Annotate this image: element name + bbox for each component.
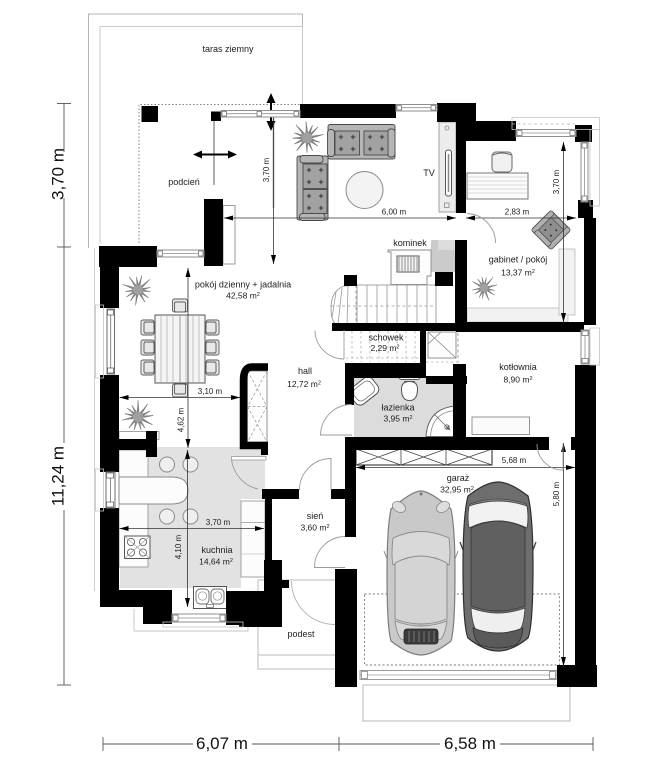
- svg-text:42,58 m2: 42,58 m2: [226, 291, 260, 301]
- svg-text:2,83 m: 2,83 m: [505, 208, 530, 217]
- svg-text:pokój dzienny + jadalnia: pokój dzienny + jadalnia: [195, 280, 291, 290]
- svg-text:4,10 m: 4,10 m: [174, 534, 183, 559]
- svg-text:6,58 m: 6,58 m: [444, 734, 496, 753]
- svg-text:11,24 m: 11,24 m: [49, 446, 68, 506]
- svg-text:3,70 m: 3,70 m: [552, 169, 561, 194]
- svg-text:schowek: schowek: [368, 333, 404, 343]
- svg-text:3,95 m2: 3,95 m2: [383, 414, 412, 424]
- svg-text:TV: TV: [423, 168, 435, 178]
- svg-text:12,72 m2: 12,72 m2: [287, 379, 321, 389]
- svg-text:5,68 m: 5,68 m: [502, 456, 527, 465]
- svg-text:kominek: kominek: [393, 238, 427, 248]
- svg-text:6,00 m: 6,00 m: [382, 208, 407, 217]
- svg-text:13,37 m2: 13,37 m2: [501, 268, 535, 278]
- svg-text:gabinet / pokój: gabinet / pokój: [489, 255, 548, 265]
- svg-text:łazienka: łazienka: [381, 403, 414, 413]
- svg-text:3,70 m: 3,70 m: [262, 157, 271, 182]
- svg-text:podcień: podcień: [168, 177, 200, 187]
- svg-text:kotłownia: kotłownia: [499, 362, 537, 372]
- svg-text:podest: podest: [287, 629, 315, 639]
- svg-text:3,10 m: 3,10 m: [198, 387, 223, 396]
- svg-text:kuchnia: kuchnia: [201, 545, 232, 555]
- svg-text:garaż: garaż: [447, 473, 470, 483]
- svg-text:6,07 m: 6,07 m: [196, 734, 248, 753]
- svg-text:3,70 m: 3,70 m: [49, 148, 68, 200]
- svg-text:8,90 m2: 8,90 m2: [503, 375, 532, 385]
- svg-text:3,70 m: 3,70 m: [206, 518, 231, 527]
- svg-text:32,95 m2: 32,95 m2: [440, 485, 474, 495]
- svg-text:sień: sień: [307, 511, 324, 521]
- svg-text:hall: hall: [298, 366, 312, 376]
- svg-text:14,64 m2: 14,64 m2: [199, 557, 233, 567]
- svg-text:2,29 m2: 2,29 m2: [370, 343, 399, 353]
- svg-text:5,80 m: 5,80 m: [552, 481, 561, 506]
- svg-text:4,62 m: 4,62 m: [177, 407, 186, 432]
- svg-text:3,60 m2: 3,60 m2: [300, 523, 329, 533]
- svg-text:taras ziemny: taras ziemny: [202, 44, 254, 54]
